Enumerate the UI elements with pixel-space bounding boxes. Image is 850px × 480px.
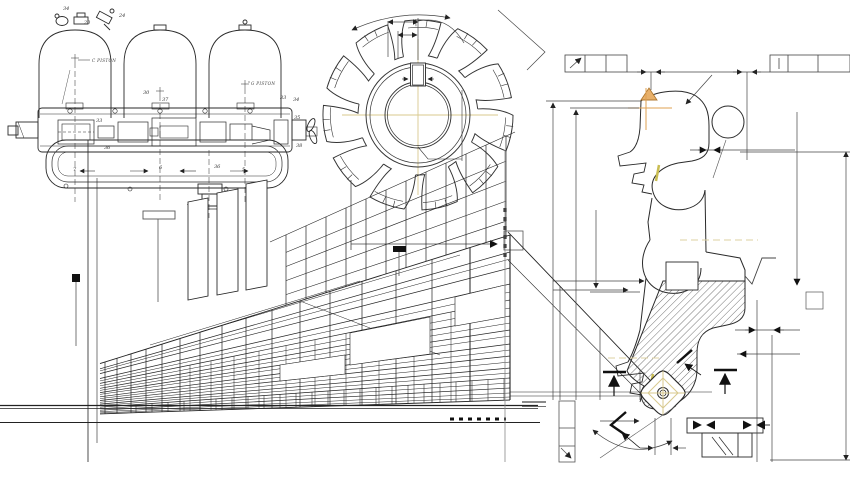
part-label: 7 bbox=[73, 167, 77, 173]
part-label: 38 bbox=[296, 143, 302, 149]
part-label: 34 bbox=[293, 97, 299, 103]
black-square-marker bbox=[72, 274, 80, 282]
piston-caption-right: G PISTON bbox=[251, 81, 275, 86]
part-label: 20 bbox=[83, 20, 91, 26]
part-label: 33 bbox=[280, 95, 286, 101]
empty-label-box bbox=[143, 211, 175, 219]
cutter-tooth bbox=[402, 19, 441, 58]
part-label: 36 bbox=[214, 164, 221, 170]
dome-chambers bbox=[39, 9, 281, 118]
surface-finish-icon bbox=[745, 258, 776, 284]
annotation-markers bbox=[72, 150, 506, 462]
clamp-symbol-right bbox=[714, 370, 737, 394]
feature-control-frames bbox=[565, 55, 850, 72]
section-strip bbox=[559, 401, 575, 462]
facade-panels bbox=[280, 285, 505, 381]
building-wireframe bbox=[0, 132, 712, 462]
part-label: 6 bbox=[159, 165, 163, 171]
part-label: 37 bbox=[162, 97, 169, 103]
part-label: 24 bbox=[118, 13, 125, 19]
part-hole bbox=[712, 106, 744, 138]
black-bar-marker bbox=[393, 246, 406, 252]
gear-cutter-view bbox=[320, 10, 545, 213]
part-label: 34 bbox=[63, 6, 69, 12]
part-label: 35 bbox=[294, 115, 300, 121]
top-dimension-chain bbox=[627, 72, 770, 160]
insert-shim-upper bbox=[656, 165, 659, 181]
cylinder-body bbox=[38, 103, 292, 152]
slope-symbol-icon bbox=[570, 58, 581, 68]
piston-caption-left: C PISTON bbox=[92, 58, 116, 63]
part-label: 33 bbox=[96, 118, 102, 124]
collage-canvas: 34 24 20 33 34 30 37 33 36 7 6 5 35 38 3… bbox=[0, 0, 850, 480]
part-label: 5 bbox=[242, 167, 245, 173]
facade-floor-lines bbox=[100, 235, 510, 414]
clamp-block bbox=[687, 418, 770, 457]
tool-section-view bbox=[522, 55, 850, 462]
gear-dimensions bbox=[352, 10, 545, 70]
part-label: 30 bbox=[143, 90, 150, 96]
gear-centerlines bbox=[342, 39, 498, 195]
lead-angle-symbol-lower bbox=[611, 412, 640, 448]
technical-drawing-collage: 34 24 20 33 34 30 37 33 36 7 6 5 35 38 3… bbox=[0, 0, 850, 480]
part-label: 36 bbox=[104, 145, 111, 151]
roof-frame-grid bbox=[270, 132, 515, 305]
patent-engine-section: 34 24 20 33 34 30 37 33 36 7 6 5 35 38 3… bbox=[8, 6, 318, 218]
vertical-fins bbox=[188, 180, 267, 300]
